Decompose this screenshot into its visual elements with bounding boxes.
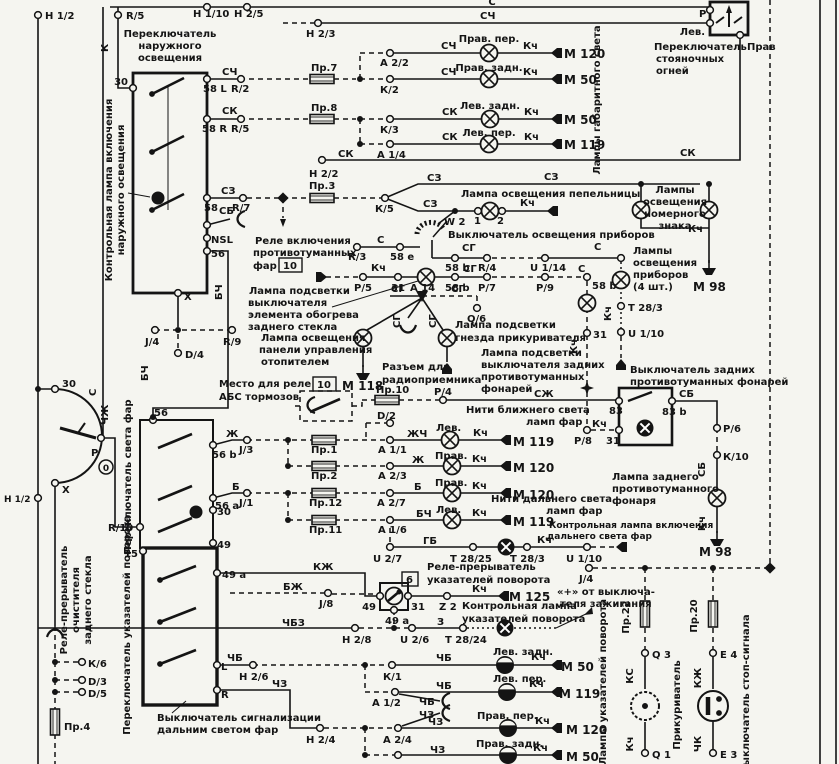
terminal <box>35 12 42 19</box>
diagram-label: J/8 <box>318 599 333 610</box>
diagram-label: 30 <box>62 379 76 390</box>
terminal <box>405 593 412 600</box>
diagram-label: Р/4 <box>434 387 452 398</box>
terminal <box>214 662 221 669</box>
diagram-label: СЗ <box>427 173 441 184</box>
diagram-label: R/5 <box>126 11 144 22</box>
diagram-label: Р/6 <box>723 424 741 435</box>
diagram-label: наружного <box>138 41 201 52</box>
terminal <box>382 195 389 202</box>
terminal <box>35 495 42 502</box>
diagram-label: R <box>221 690 229 701</box>
diagram-label: фар <box>253 260 277 272</box>
terminal <box>130 85 137 92</box>
diagram-label: СЧ <box>480 11 495 22</box>
terminal <box>584 427 591 434</box>
diagram-label: фонаря <box>612 495 656 507</box>
connector-icon <box>547 206 558 216</box>
junction-dot <box>706 181 712 187</box>
diagram-label: знака <box>658 221 691 232</box>
diagram-label: 58 <box>204 203 218 214</box>
diagram-label: Кч <box>523 67 538 78</box>
junction-dot <box>285 437 291 443</box>
diagram-label: Кч <box>523 41 538 52</box>
diagram-label: Пр.8 <box>311 103 337 114</box>
diagram-label: элемента обогрева <box>248 309 359 321</box>
diagram-label: указателей поворота <box>462 614 585 625</box>
terminal <box>137 524 144 531</box>
junction-dot <box>642 565 648 571</box>
diagram-label: Е 3 <box>720 750 737 761</box>
diagram-label: Нити ближнего света <box>466 404 590 416</box>
terminal <box>240 195 247 202</box>
diagram-label: Н 2/6 <box>239 672 268 683</box>
terminal <box>460 625 467 632</box>
terminal <box>79 689 86 696</box>
diagram-label: очистителя <box>71 567 82 633</box>
terminal <box>584 544 591 551</box>
diagram-label: Пр.7 <box>311 63 337 74</box>
diagram-label: выключателя <box>248 298 327 309</box>
diagram-label: А 1/2 <box>372 698 401 709</box>
diagram-label: Прав. <box>435 451 467 462</box>
diagram-label: СЗ <box>423 199 437 210</box>
terminal <box>452 274 459 281</box>
diagram-label: К/2 <box>380 85 399 96</box>
diagram-label: Н 2/3 <box>306 29 335 40</box>
diagram-label: М 98 <box>699 545 732 559</box>
diagram-label: БЧ <box>416 509 432 520</box>
diagram-label: U 2/7 <box>373 554 402 565</box>
diagram-label: Переключатель указателей поворота <box>122 515 133 735</box>
connector-icon <box>500 515 511 525</box>
diagram-label: СЖ <box>534 389 554 400</box>
junction-dot <box>362 725 368 731</box>
diagram-label: указателей поворота <box>427 575 550 586</box>
diagram-label: ЧЖ <box>100 404 111 425</box>
terminal <box>387 517 394 524</box>
diagram-label: R/5 <box>231 124 249 135</box>
terminal <box>542 274 549 281</box>
junction-dot <box>357 76 363 82</box>
terminal <box>395 752 402 759</box>
diagram-label: К/5 <box>375 204 394 215</box>
terminal <box>315 20 322 27</box>
terminal <box>710 750 717 757</box>
diagram-label: Н 1/2 <box>4 495 30 505</box>
diagram-label: СГ <box>391 284 405 295</box>
diagram-label: А 1/1 <box>378 445 407 456</box>
indicator-lamp-icon <box>637 420 654 437</box>
terminal <box>387 76 394 83</box>
diagram-label: 31 <box>593 330 607 341</box>
terminal <box>618 303 625 310</box>
diagram-label: СК <box>442 107 458 118</box>
diagram-label: P <box>91 448 98 459</box>
diagram-label: Е 4 <box>720 650 737 661</box>
diagram-label: Т 28/24 <box>445 635 487 646</box>
diagram-label: гнезда прикуривателя <box>455 333 586 344</box>
terminal <box>387 463 394 470</box>
terminal <box>152 327 159 334</box>
diagram-label: Р/9 <box>536 283 554 294</box>
diagram-label: противотуманного <box>612 484 719 495</box>
fuse-icon <box>51 709 60 735</box>
diagram-label: Кч <box>472 481 487 492</box>
terminal <box>325 590 332 597</box>
terminal <box>238 76 245 83</box>
diagram-label: Кч <box>535 716 550 727</box>
diagram-label: А 2/3 <box>378 471 407 482</box>
diagram-label: ламп фар <box>546 505 602 517</box>
junction-dot <box>362 662 368 668</box>
diagram-label: Пр.4 <box>64 722 90 733</box>
diagram-label: Кч <box>473 428 488 439</box>
terminal <box>214 570 221 577</box>
lamp-icon <box>481 45 498 62</box>
diagram-label: КЖ <box>313 562 334 573</box>
lamp-icon <box>482 111 499 128</box>
terminal <box>707 7 714 14</box>
diagram-label: Б <box>232 482 240 493</box>
diagram-label: номерного <box>644 209 706 220</box>
connector-icon <box>551 48 562 58</box>
junction-star <box>580 381 594 395</box>
diagram-label: Прав. пер. <box>459 34 520 45</box>
terminal <box>387 141 394 148</box>
diagram-label: Р <box>699 9 706 20</box>
diagram-label: Кч <box>472 584 487 595</box>
diagram-label: 49 <box>217 540 231 551</box>
diagram-label: Лев. <box>436 423 461 434</box>
diagram-label: Б <box>414 482 422 493</box>
diagram-label: СБ <box>219 206 234 217</box>
terminal <box>244 490 251 497</box>
diagram-label: 49 <box>362 602 376 613</box>
turn-lamp-icon <box>500 720 517 737</box>
diagram-label: Н 2/5 <box>234 9 263 20</box>
lamp-icon <box>439 330 456 347</box>
diagram-label: ЧБ <box>436 681 452 692</box>
diagram-label: ЧК <box>693 735 704 752</box>
diagram-label: заднего стекла <box>83 555 94 644</box>
indicator-lamp-icon <box>498 539 515 556</box>
lamp-icon <box>482 203 499 220</box>
diagram-label: Лампы указателей поворота <box>598 599 609 764</box>
diagram-label: 58 е <box>390 252 414 263</box>
diagram-label: 31 <box>606 436 620 447</box>
diagram-label: БЧ <box>140 365 151 381</box>
diagram-label: Кч <box>371 263 386 274</box>
diagram-label: ЧЗ <box>430 745 445 756</box>
diagram-label: U 2/6 <box>400 635 429 646</box>
connector-icon <box>316 272 327 282</box>
diagram-label: ГБ <box>423 536 437 547</box>
diagram-label: Q 1 <box>652 750 671 761</box>
terminal <box>204 195 211 202</box>
diagram-label: С <box>578 264 585 275</box>
diagram-label: Лев. <box>680 27 705 38</box>
diagram-label: Кч <box>524 132 539 143</box>
diagram-label: Пр.11 <box>309 525 342 536</box>
diagram-label: Z 2 <box>439 602 457 613</box>
connector-icon <box>616 542 627 552</box>
diagram-label: К/3 <box>380 125 399 136</box>
diagram-label: 56 <box>211 249 225 260</box>
diagram-label: D/5 <box>88 689 107 700</box>
diagram-label: СЧ <box>441 67 456 78</box>
terminal <box>360 274 367 281</box>
diagram-label: приборов <box>633 269 688 281</box>
diagram-label: отопителем <box>261 357 329 368</box>
terminal <box>204 76 211 83</box>
fuse-icon <box>310 75 334 84</box>
fuse-icon <box>312 462 336 471</box>
diagram-label: Н 2/8 <box>342 635 371 646</box>
diagram-label: Лампа заднего <box>612 472 699 483</box>
terminal <box>229 327 236 334</box>
stop-switch <box>698 691 728 721</box>
diagram-label: СГ <box>428 314 439 328</box>
terminal <box>669 398 676 405</box>
labels-layer: Н 1/2R/5КПереключательнаружногоосвещения… <box>4 0 788 764</box>
diagram-label: W 2 <box>444 217 466 228</box>
ground-icon <box>710 531 724 546</box>
diagram-label: К/10 <box>723 452 749 463</box>
diagram-label: Ж <box>226 429 239 440</box>
ground-icon <box>356 365 370 380</box>
diagram-label: Кч <box>569 339 580 354</box>
diagram-label: X <box>184 292 192 303</box>
connector-icon <box>551 750 562 760</box>
terminal <box>214 687 221 694</box>
diagram-label: Н 2/2 <box>309 169 338 180</box>
diagram-label: 1 <box>474 216 481 227</box>
fuse-icon <box>312 489 336 498</box>
junction-dot <box>52 659 58 665</box>
diagram-label: ЧБ <box>436 653 452 664</box>
terminal <box>484 255 491 262</box>
junction-dot <box>357 141 363 147</box>
diagram-label: СК <box>338 149 354 160</box>
diagram-label: Лампа подсветки <box>481 348 582 359</box>
terminal <box>470 544 477 551</box>
diagram-label: выключателя задних <box>481 360 605 371</box>
connector-icon <box>551 139 562 149</box>
diagram-label: U 1/10 <box>628 329 664 340</box>
lamp-icon <box>579 295 596 312</box>
terminal <box>210 442 217 449</box>
terminal <box>210 540 217 547</box>
connector-icon <box>500 461 511 471</box>
diagram-label: Лампы <box>655 185 694 196</box>
terminal <box>52 480 59 487</box>
diagram-label: Кч <box>520 198 535 209</box>
diagram-label: R/9 <box>223 337 241 348</box>
diagram-label: СГ <box>462 243 476 254</box>
diagram-label: Кч <box>592 419 607 430</box>
diagram-label: 30 <box>217 507 231 518</box>
diagram-label: С <box>377 235 384 246</box>
diagram-label: Р/5 <box>354 283 372 294</box>
junction-diamond <box>764 562 775 573</box>
diagram-label: Переключатель <box>654 42 747 53</box>
terminal <box>175 290 182 297</box>
diagram-label: Реле включения <box>255 236 351 247</box>
diagram-label: 6 <box>406 575 413 586</box>
terminal <box>409 625 416 632</box>
diagram-label: D/4 <box>185 350 204 361</box>
terminal <box>238 116 245 123</box>
diagram-label: К/6 <box>88 659 107 670</box>
diagram-label: Пр.1 <box>311 445 337 456</box>
terminal <box>387 490 394 497</box>
terminal <box>79 677 86 684</box>
terminal <box>714 452 721 459</box>
diagram-label: U 1/10 <box>566 554 602 565</box>
diagram-label: Пр.10 <box>376 385 409 396</box>
terminal <box>79 659 86 666</box>
terminal <box>98 435 105 442</box>
diagram-label: (4 шт.) <box>633 282 673 293</box>
diagram-label: Выключатель сигнализации <box>157 713 321 724</box>
diagram-label: Кч <box>688 224 703 235</box>
diagram-label: М 119 <box>559 687 600 701</box>
junction-diamond <box>277 192 288 203</box>
schematic-sheet: Н 1/2R/5КПереключательнаружногоосвещения… <box>0 0 839 764</box>
terminal <box>244 437 251 444</box>
terminal <box>542 255 549 262</box>
diagram-label: D/3 <box>88 677 107 688</box>
diagram-label: Реле-прерыватель <box>427 562 536 573</box>
terminal <box>389 662 396 669</box>
diagram-label: М 119 <box>513 515 554 529</box>
diagram-label: С <box>88 389 99 396</box>
fuse-icon <box>312 516 336 525</box>
diagram-label: С <box>488 0 495 8</box>
terminal <box>618 329 625 336</box>
diagram-label: ламп фар <box>526 416 582 428</box>
diagram-label: КЖ <box>693 667 704 688</box>
diagram-label: J/1 <box>238 498 253 509</box>
diagram-label: Пр.22 <box>621 600 632 633</box>
lamp-icon <box>442 432 459 449</box>
terminal <box>204 235 211 242</box>
diagram-label: дальнего света фар <box>547 532 653 542</box>
junction-dot <box>285 517 291 523</box>
terminal <box>475 208 482 215</box>
terminal <box>387 437 394 444</box>
diagram-label: заднего стекла <box>248 322 337 333</box>
diagram-label: БЖ <box>283 582 304 593</box>
terminal <box>737 32 744 39</box>
terminal <box>204 248 211 255</box>
junction-dot <box>362 752 368 758</box>
diagram-label: ЧБЗ <box>282 618 305 629</box>
diagram-label: J/4 <box>144 337 159 348</box>
diagram-label: Прав. задн. <box>455 63 522 74</box>
diagram-label: Н 1/10 <box>193 9 229 20</box>
diagram-label: СЗ <box>544 172 558 183</box>
diagram-label: освещения <box>643 197 707 208</box>
diagram-label: Лев. задн. <box>460 101 520 112</box>
diagram-label: Кч <box>603 306 614 321</box>
terminal <box>707 20 714 27</box>
diagram-label: R/2 <box>231 84 249 95</box>
diagram-label: стояночных <box>656 54 725 65</box>
diagram-label: Разъем для <box>382 362 450 373</box>
terminal <box>377 593 384 600</box>
junction-dot <box>52 677 58 683</box>
connector-icon <box>551 114 562 124</box>
diagram-label: панели управления <box>259 345 372 356</box>
diagram-label: К <box>100 43 111 52</box>
diagram-label: 58 b <box>592 281 617 292</box>
terminal <box>52 386 59 393</box>
junction-dot <box>357 116 363 122</box>
terminal <box>115 12 122 19</box>
diagram-label: X <box>62 485 70 496</box>
diagram-label: Прав. пер. <box>477 711 538 722</box>
terminal <box>395 274 402 281</box>
diagram-label: D/2 <box>377 411 396 422</box>
ignition-switch-arc <box>55 389 102 483</box>
diagram-label: Лампа подсветки <box>249 286 350 297</box>
junction-dot <box>35 386 41 392</box>
diagram-label: АБС тормозов <box>219 392 299 403</box>
diagram-label: противотуманных <box>253 248 357 259</box>
diagram-label: 30 <box>114 77 128 88</box>
diagram-label: Т 28/3 <box>628 303 663 314</box>
terminal <box>392 689 399 696</box>
diagram-label: А 2/4 <box>383 735 412 746</box>
diagram-label: Кч <box>533 743 548 754</box>
diagram-label: Пр.20 <box>689 599 700 632</box>
terminal <box>395 725 402 732</box>
diagram-label: Пр.2 <box>311 471 337 482</box>
diagram-label: 58 L <box>203 84 227 95</box>
diagram-label: 58 R <box>202 124 227 135</box>
terminal <box>250 662 257 669</box>
diagram-label: Лев. <box>436 505 461 516</box>
diagram-label: Контрольная лампа включения <box>549 521 713 531</box>
terminal <box>444 593 451 600</box>
diagram-label: J/3 <box>238 445 253 456</box>
diagram-label: БЧ <box>214 284 225 300</box>
diagram-label: А 1/6 <box>378 525 407 536</box>
diagram-label: Р/8 <box>574 436 592 447</box>
fuse-icon <box>310 115 334 124</box>
diagram-label: Прикуриватель <box>672 660 683 749</box>
ground-icon <box>702 260 716 275</box>
diagram-label: Лампа освещения <box>261 333 365 344</box>
connector-icon <box>616 359 626 370</box>
diagram-label: 56 <box>154 408 168 419</box>
diagram-label: СГ <box>463 264 477 275</box>
diagram-label: СБ <box>679 389 694 400</box>
diagram-label: КС <box>625 668 636 684</box>
junction-dot <box>452 208 458 214</box>
diagram-label: ЧЗ <box>428 717 443 728</box>
diagram-label: «+» от выключа- <box>557 587 655 598</box>
junction-dot <box>285 490 291 496</box>
diagram-label: фонарей <box>481 383 532 395</box>
exterior-light-switch <box>133 73 207 293</box>
diagram-label: 2 <box>497 216 504 227</box>
diagram-label: Кч <box>531 652 546 663</box>
plug-fork-icon <box>443 705 451 721</box>
diagram-label: СЧ <box>222 67 237 78</box>
